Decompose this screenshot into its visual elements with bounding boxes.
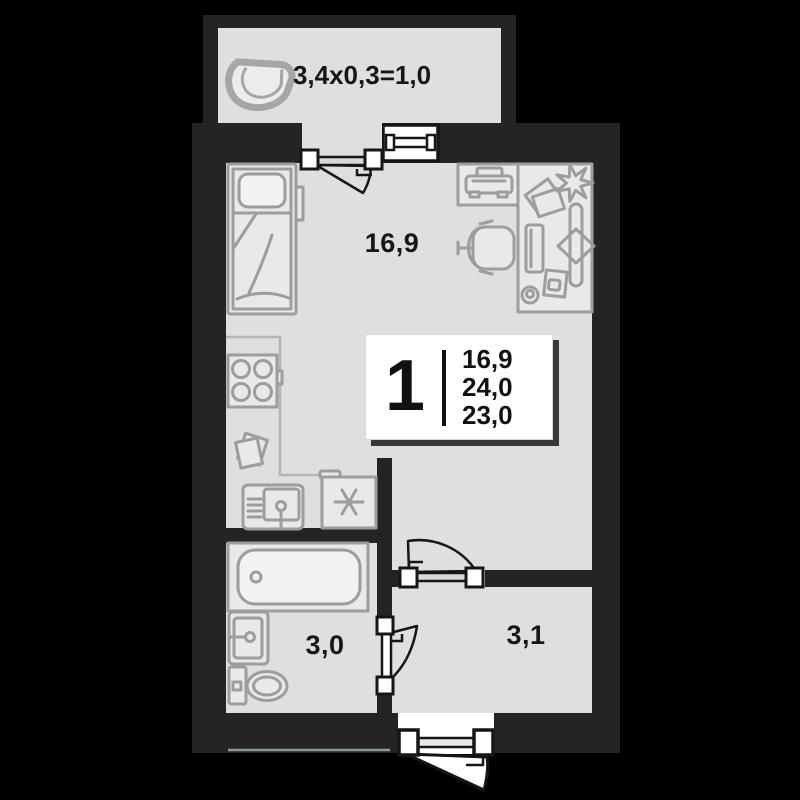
other-area-value: 23,0 bbox=[462, 401, 513, 429]
cutting-boards-icon bbox=[236, 433, 268, 468]
bathroom-sink-icon bbox=[229, 612, 268, 664]
hallway-area-label: 3,1 bbox=[493, 620, 559, 651]
window-icon bbox=[383, 125, 438, 161]
bathroom-door bbox=[377, 617, 417, 694]
living-room-area-label: 16,9 bbox=[349, 228, 435, 259]
apartment-info-card: 1 16,9 24,0 23,0 bbox=[365, 334, 553, 440]
bed-icon bbox=[228, 164, 296, 314]
balcony-door bbox=[301, 123, 382, 193]
balcony-size-label: 3,4x0,3=1,0 bbox=[278, 60, 446, 91]
tablet-icon bbox=[544, 270, 567, 297]
bathroom-area-label: 3,0 bbox=[292, 630, 358, 661]
kitchen-sink-icon bbox=[243, 485, 303, 529]
hall-door bbox=[400, 540, 485, 587]
mouse-icon bbox=[522, 287, 538, 303]
fridge-icon bbox=[320, 471, 376, 528]
stove-icon bbox=[228, 355, 282, 407]
printer-icon bbox=[458, 164, 518, 205]
bathtub-icon bbox=[228, 543, 368, 611]
rooms-count: 1 bbox=[366, 335, 442, 439]
entrance-door bbox=[398, 713, 494, 790]
monitor-icon bbox=[526, 225, 543, 272]
living-area-value: 16,9 bbox=[462, 345, 513, 373]
toilet-icon bbox=[229, 667, 287, 704]
chair-icon bbox=[458, 221, 514, 274]
floor-plan: 3,4x0,3=1,0 16,9 3,0 3,1 1 16,9 24,0 23,… bbox=[0, 0, 800, 800]
card-areas: 16,9 24,0 23,0 bbox=[446, 335, 513, 439]
bedside-shelf-icon bbox=[296, 187, 303, 220]
total-area-value: 24,0 bbox=[462, 373, 513, 401]
